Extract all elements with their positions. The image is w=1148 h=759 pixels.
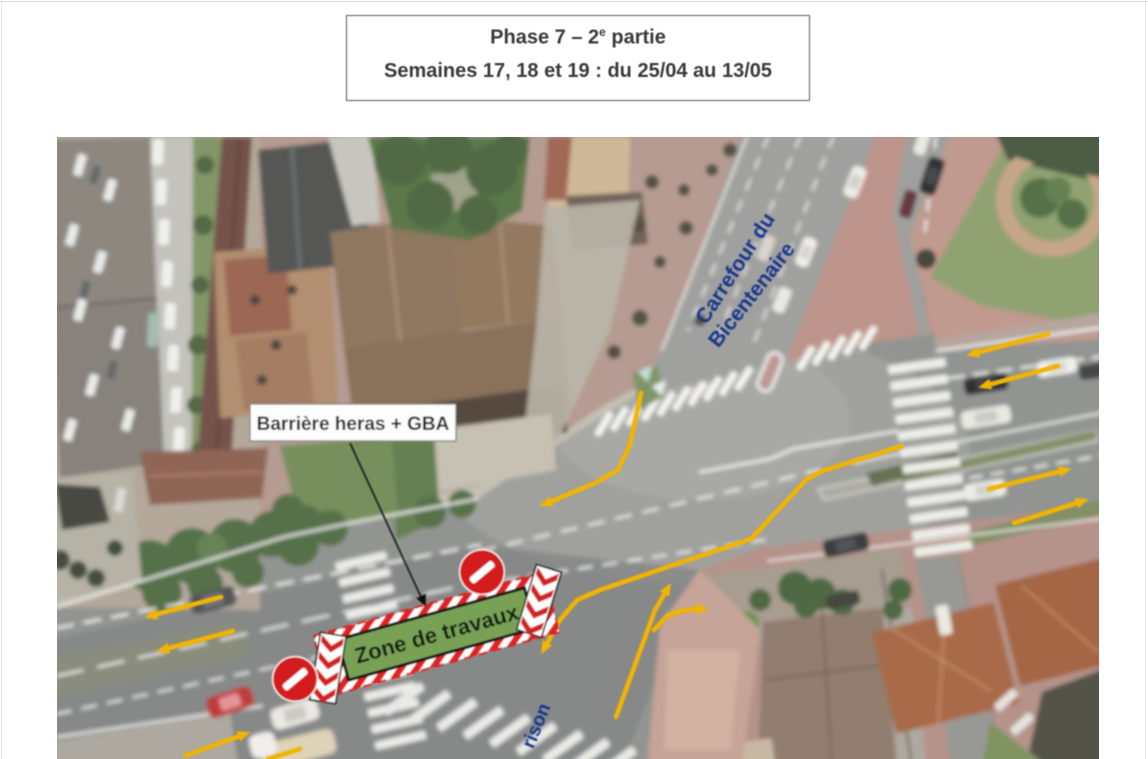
svg-text:Barrière heras + GBA: Barrière heras + GBA [257, 414, 450, 435]
